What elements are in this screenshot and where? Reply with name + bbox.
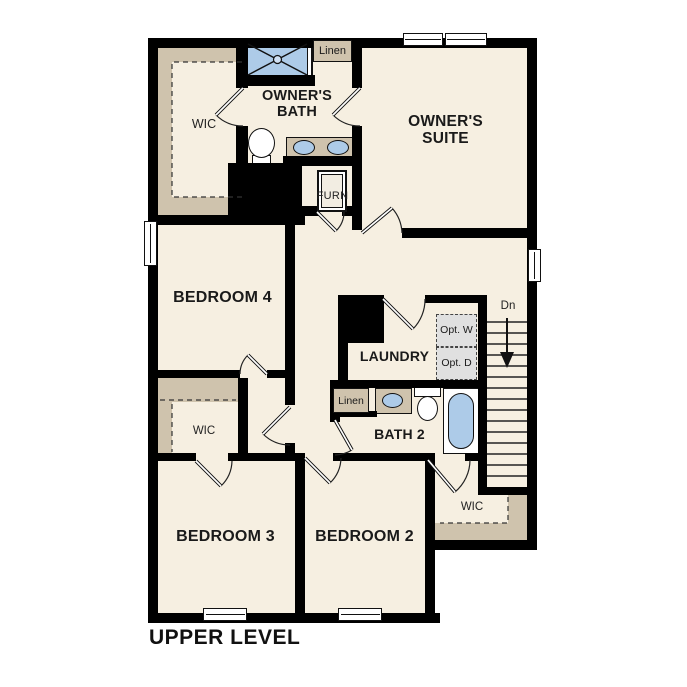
wall: [478, 487, 537, 495]
room-label-laundry: LAUNDRY: [342, 349, 447, 365]
wall: [402, 228, 537, 238]
owners-wic-shelf-left: [158, 48, 172, 215]
window-bedroom4-left: [144, 221, 157, 266]
window-bedroom3-bottom: [203, 608, 247, 621]
room-label-owners-wic: WIC: [165, 117, 243, 131]
wall: [240, 75, 315, 86]
hall-wic-shelf-left: [158, 402, 172, 455]
plan-title: UPPER LEVEL: [149, 626, 300, 650]
stairs-down-label: Dn: [494, 300, 522, 313]
bath2-sink: [382, 393, 403, 408]
window-bedroom2-bottom: [338, 608, 382, 621]
wall: [236, 126, 248, 166]
room-label-bedroom2: BEDROOM 2: [292, 528, 437, 546]
optional-washer-box: Opt. W: [436, 314, 477, 347]
owners-bath-toilet-bowl: [248, 128, 275, 158]
wall: [148, 613, 440, 623]
wall: [285, 223, 295, 405]
optional-washer-label: Opt. W: [440, 324, 473, 336]
wall: [527, 38, 537, 550]
room-label-bedroom3: BEDROOM 3: [153, 528, 298, 546]
room-label-hall-wic: WIC: [174, 425, 234, 438]
bath2-toilet-bowl: [417, 396, 438, 421]
wall: [465, 453, 487, 461]
owners-bath-sink-left: [293, 140, 315, 155]
wall: [425, 540, 537, 550]
wall: [338, 295, 348, 388]
wall: [148, 453, 196, 461]
hall-wic-shelf-top: [158, 378, 238, 402]
linen-owners-label: Linen: [319, 45, 346, 57]
room-label-bedroom2-wic: WIC: [442, 501, 502, 514]
wall: [330, 380, 487, 388]
exterior-cutout: [435, 550, 540, 623]
window-owners-suite-right: [528, 249, 541, 282]
wall: [478, 295, 487, 495]
wall: [238, 378, 248, 455]
room-label-owners-bath: OWNER'S BATH: [247, 88, 347, 120]
room-label-bath2: BATH 2: [352, 427, 447, 443]
wall: [352, 126, 362, 230]
wall: [333, 453, 433, 461]
wall: [267, 370, 285, 378]
room-label-owners-suite: OWNER'S SUITE: [383, 113, 508, 148]
owners-bath-sink-right: [327, 140, 349, 155]
linen-closet-owners: Linen: [313, 40, 352, 62]
furnace-label: FURN: [311, 190, 354, 202]
linen-closet-bath2: Linen: [333, 388, 369, 413]
bathtub: [448, 393, 474, 449]
wall: [285, 443, 295, 461]
wall: [148, 215, 305, 225]
room-label-bedroom4: BEDROOM 4: [150, 289, 295, 307]
wall: [352, 38, 362, 88]
linen-bath2-label: Linen: [338, 395, 364, 407]
wall: [283, 156, 362, 166]
wall: [290, 206, 319, 216]
wall: [148, 370, 240, 378]
bedroom2-wic-shelf-bottom: [435, 523, 527, 540]
floor-plan: Opt. W Opt. D Linen Linen: [0, 0, 687, 687]
window-owners-suite-top-left-pane: [403, 33, 443, 46]
window-owners-suite-top-right-pane: [445, 33, 487, 46]
